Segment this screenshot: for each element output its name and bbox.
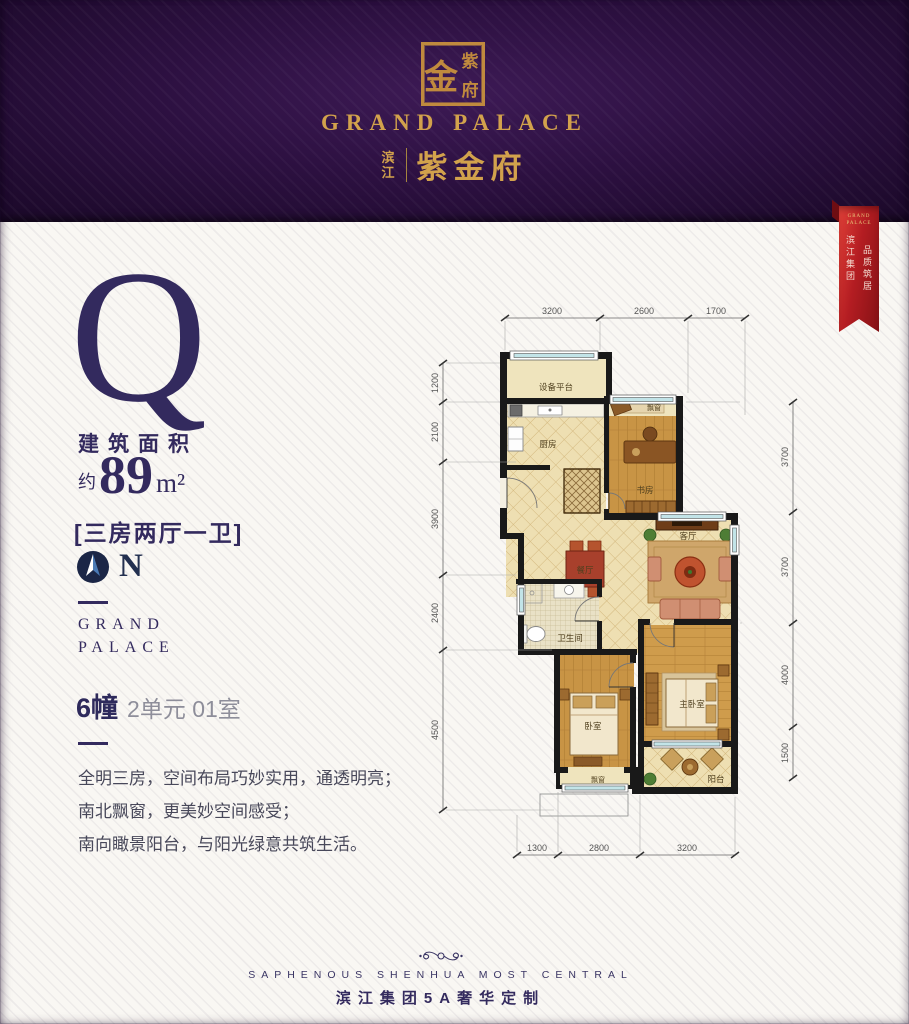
unit-number-row: 6幢 2单元 01室: [76, 686, 241, 725]
footer-tagline-cn: 滨江集团5A奢华定制: [336, 987, 545, 1008]
brand-name-en: GRAND PALACE: [0, 110, 909, 136]
brand-prefix-cn: 滨 江: [381, 150, 395, 180]
area-value: 89: [99, 448, 153, 502]
brand-name-cn: 紫金府: [417, 142, 528, 187]
dim-label: 1700: [706, 306, 726, 316]
dim-label: 3200: [542, 306, 562, 316]
dim-label: 3900: [430, 509, 440, 529]
footer: SAPHENOUS SHENHUA MOST CENTRAL 滨江集团5A奢华定…: [0, 949, 895, 1008]
plan-type-letter: Q: [70, 242, 207, 432]
ribbon-brand: GRAND PALACE: [847, 213, 872, 227]
brand-divider: [406, 148, 407, 182]
seal-char-top: 紫: [462, 47, 479, 72]
unit-room-number: 2单元 01室: [127, 690, 241, 724]
north-label: N: [119, 548, 143, 585]
room-label: 飘窗: [647, 403, 661, 412]
dim-label: 2600: [634, 306, 654, 316]
seal-char-main: 金: [424, 45, 458, 103]
north-indicator: N: [76, 548, 143, 585]
divider-line: [78, 742, 108, 745]
brand-small-lockup: GRAND PALACE: [78, 613, 175, 659]
room-label: 卫生间: [557, 633, 583, 643]
description-text: 全明三房，空间布局巧妙实用，通透明亮； 南北飘窗，更美妙空间感受； 南向瞰景阳台…: [78, 762, 401, 861]
room-label: 客厅: [679, 531, 697, 541]
room-layout-text: [三房两厅一卫]: [74, 514, 243, 548]
area-approx: 约: [78, 468, 96, 494]
room-label: 卧室: [584, 721, 602, 731]
room-label: 厨房: [539, 439, 556, 449]
dim-label: 4000: [780, 665, 790, 685]
ribbon-text-right: 品质筑居: [861, 245, 874, 293]
floorplan: 设备平台 厨房 飘窗 书房 餐厅 客厅 卫生间 卧室 主卧室 飘窗 阳台: [420, 295, 810, 880]
dim-label: 2400: [430, 603, 440, 623]
ribbon-bookmark: GRAND PALACE 滨江集团 品质筑居: [839, 206, 879, 332]
room-label: 书房: [636, 485, 653, 495]
dim-label: 1300: [527, 843, 547, 853]
ribbon-text-left: 滨江集团: [844, 235, 857, 293]
description-line: 南北飘窗，更美妙空间感受；: [78, 795, 401, 828]
area-unit: m²: [156, 468, 185, 499]
building-number: 6幢: [76, 686, 118, 725]
room-label: 阳台: [707, 774, 724, 784]
footer-flourish-icon: [418, 949, 464, 963]
area-value-row: 约 89 m²: [78, 448, 185, 502]
exterior-ledge: [540, 794, 628, 816]
room-label: 飘窗: [591, 775, 605, 784]
header-banner: 金 紫 府 GRAND PALACE 滨 江 紫金府: [0, 0, 909, 222]
dim-label: 2800: [589, 843, 609, 853]
dim-label: 1500: [780, 743, 790, 763]
seal-logo-icon: 金 紫 府: [421, 42, 485, 106]
north-compass-icon: [76, 550, 110, 584]
dim-label: 3700: [780, 447, 790, 467]
description-line: 全明三房，空间布局巧妙实用，通透明亮；: [78, 762, 401, 795]
room-label: 设备平台: [539, 382, 573, 392]
dim-label: 4500: [430, 720, 440, 740]
description-line: 南向瞰景阳台，与阳光绿意共筑生活。: [78, 828, 401, 861]
divider-line: [78, 601, 108, 604]
seal-char-bottom: 府: [462, 76, 479, 101]
dim-label: 3200: [677, 843, 697, 853]
dim-label: 2100: [430, 422, 440, 442]
footer-tagline-en: SAPHENOUS SHENHUA MOST CENTRAL: [248, 969, 633, 981]
room-label: 主卧室: [679, 699, 705, 709]
poster-page: 金 紫 府 GRAND PALACE 滨 江 紫金府 GRAND PALACE …: [0, 0, 909, 1024]
dim-label: 3700: [780, 557, 790, 577]
dim-label: 1200: [430, 373, 440, 393]
floorplan-svg: 设备平台 厨房 飘窗 书房 餐厅 客厅 卫生间 卧室 主卧室 飘窗 阳台: [420, 295, 810, 880]
room-label: 餐厅: [576, 565, 594, 575]
brand-lockup-cn: 滨 江 紫金府: [0, 142, 909, 187]
